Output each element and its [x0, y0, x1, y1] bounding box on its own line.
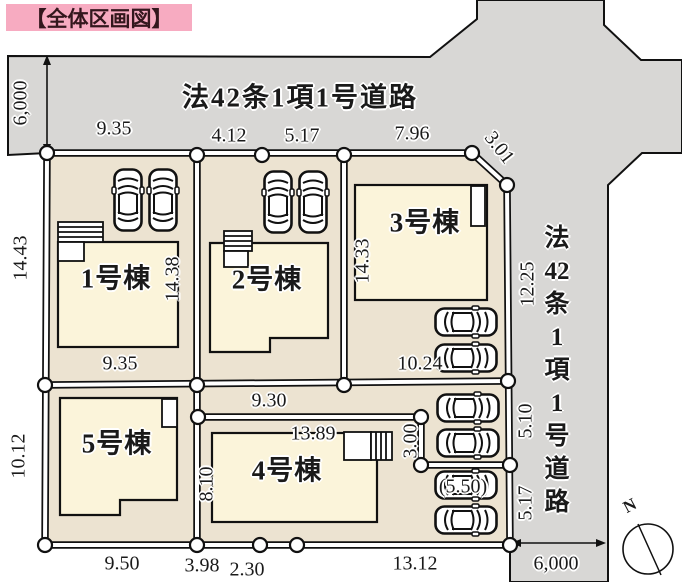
building-5-porch: [162, 399, 177, 427]
dim-lot3-depth: 14.33: [352, 239, 375, 284]
dim-parking-south: (5.50): [439, 476, 487, 499]
dim-top-4: 7.96: [395, 123, 430, 146]
lot4-label: 4号棟: [252, 449, 323, 488]
dim-right-road-width: 6,000: [534, 553, 579, 576]
building-4-porch: [344, 432, 371, 460]
dim-top-1: 9.35: [97, 118, 132, 141]
dim-right-1: 12.25: [517, 262, 540, 307]
dim-parking-depth: 3.00: [400, 424, 423, 459]
dim-lot4-width: 13.89: [291, 423, 336, 446]
site-plan: 【全体区画図】 法42条1項1号道路 法 42 条 1 項 1 号 道 路 6,…: [0, 0, 682, 582]
dim-top-3: 5.17: [285, 125, 320, 148]
dim-top-2: 4.12: [212, 125, 247, 148]
stairs-icon: [371, 432, 392, 460]
dim-lot4-depth: 8.10: [196, 467, 219, 502]
compass-icon: [623, 524, 673, 575]
dim-corridor: 9.30: [252, 390, 287, 413]
dim-bottom-3: 2.30: [230, 559, 265, 582]
dim-lot1-depth: 14.38: [162, 257, 185, 302]
right-road-label: 法 42 条 1 項 1 号 道 路: [540, 222, 574, 519]
dim-bottom-4: 13.12: [393, 553, 438, 576]
lot3-label: 3号棟: [390, 201, 461, 240]
dim-top-road-width: 6,000: [10, 81, 33, 126]
dim-right-3: 5.17: [515, 486, 538, 521]
lot5-label: 5号棟: [82, 422, 153, 461]
dim-lot3-parking: 10.24: [398, 353, 443, 376]
lot2-label: 2号棟: [232, 258, 303, 297]
top-road-label: 法42条1項1号道路: [182, 76, 418, 115]
stairs-icon: [58, 222, 103, 242]
lot1-label: 1号棟: [81, 257, 152, 296]
dim-left-2: 10.12: [8, 434, 31, 479]
dim-bottom-2: 3.98: [185, 555, 220, 578]
stairs-icon: [224, 231, 252, 251]
dim-lot1-frontage: 9.35: [103, 353, 138, 376]
dim-left-1: 14.43: [10, 236, 33, 281]
building-3-porch: [471, 186, 485, 226]
dim-right-2: 5.10: [515, 404, 538, 439]
dim-bottom-1: 9.50: [105, 553, 140, 576]
page-title: 【全体区画図】: [6, 4, 192, 31]
